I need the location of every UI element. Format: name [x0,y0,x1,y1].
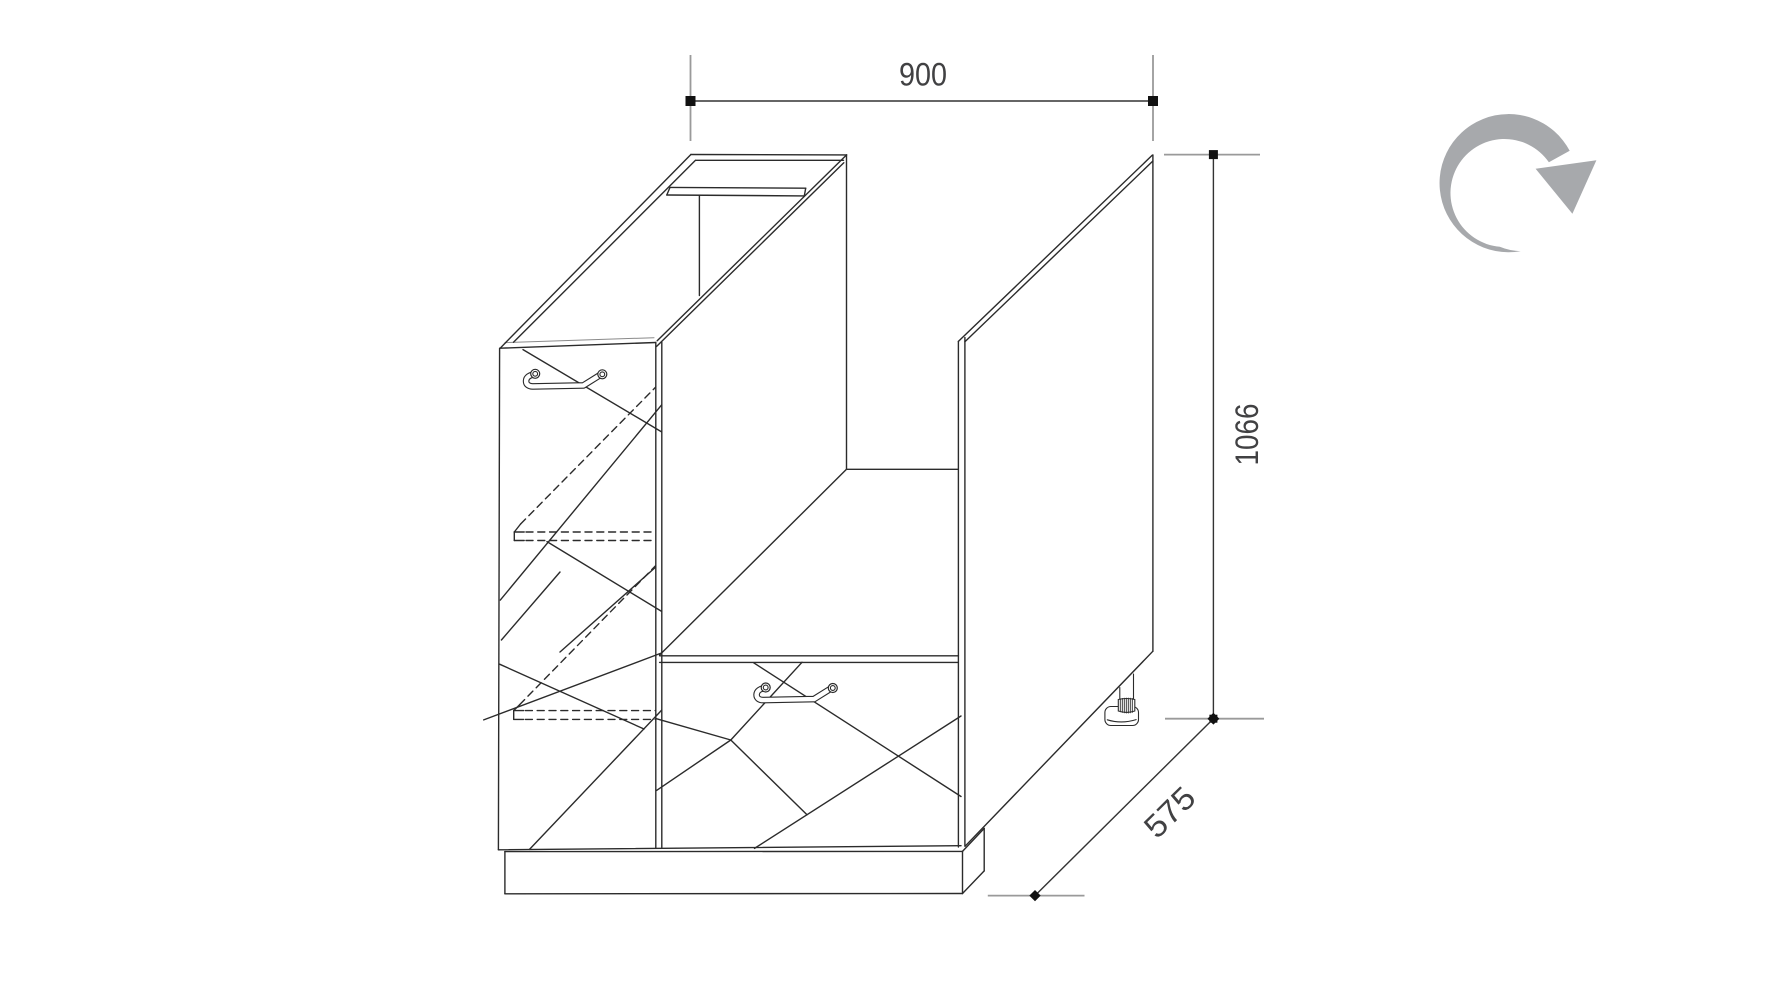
svg-text:900: 900 [899,57,947,93]
svg-text:1066: 1066 [1229,404,1265,466]
